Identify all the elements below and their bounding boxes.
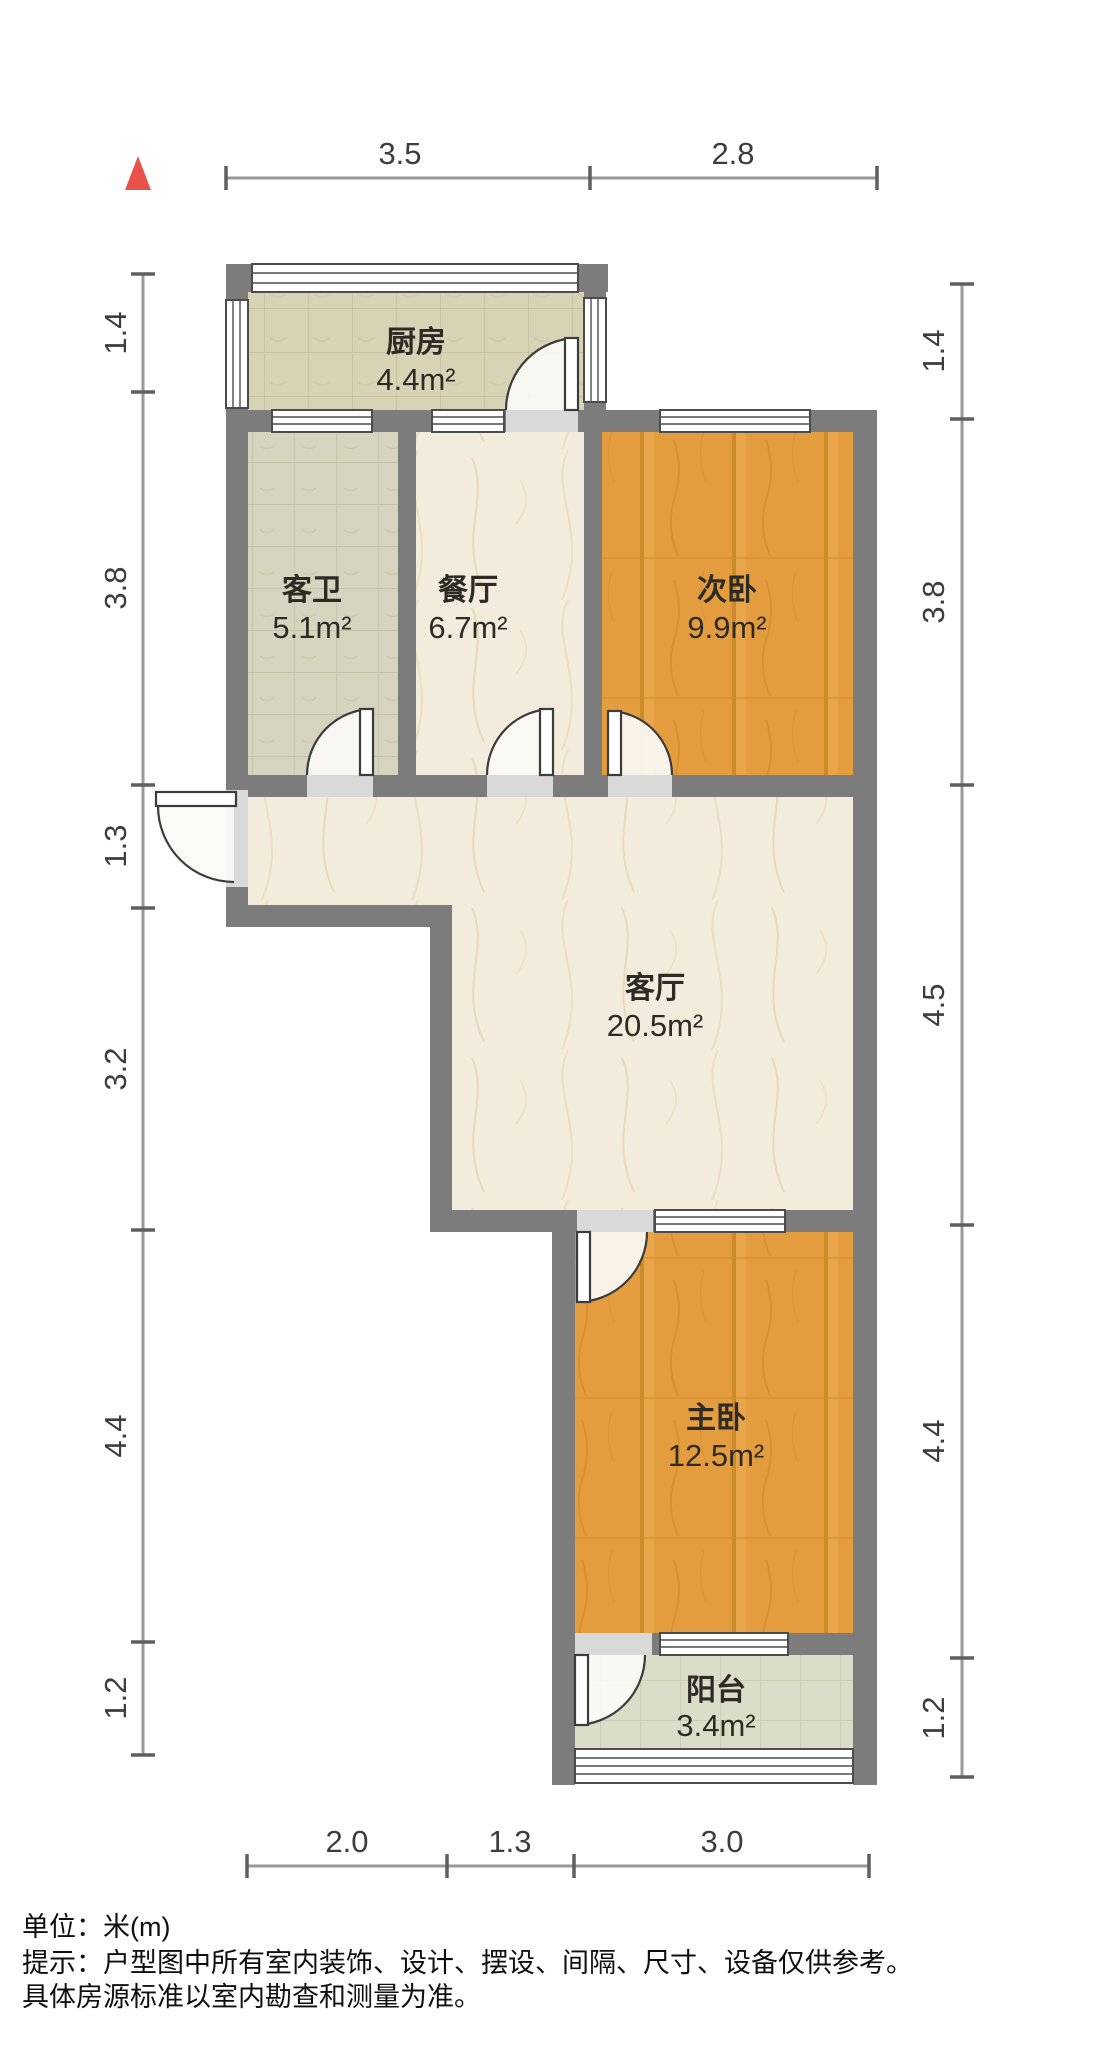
floor-plan-svg: 厨房 4.4m² 客卫 5.1m² 餐厅 6.7m² 次卧 9.9m² 客厅 2… [0,0,1106,2048]
dim-left-2: 3.8 [98,566,133,609]
dim-left-4: 3.2 [98,1047,133,1090]
room-floors [248,292,853,1749]
tip-note-line2: 具体房源标准以室内勘查和测量为准。 [22,1982,481,2012]
dim-bottom-2: 1.3 [488,1824,531,1859]
dim-top-2: 2.8 [711,136,754,171]
living-label: 客厅 [625,971,685,1005]
bath-transom-window-icon [272,410,372,432]
unit-note: 单位：米(m) [22,1912,170,1942]
dim-top-1: 3.5 [378,136,421,171]
dim-right-3: 4.5 [916,983,951,1026]
master-area: 12.5m² [668,1438,764,1473]
tip-note-line1: 提示：户型图中所有室内装饰、设计、摆设、间隔、尺寸、设备仅供参考。 [22,1948,913,1978]
kitchen-top-window-icon [252,264,578,292]
dimension-top: 3.5 2.8 [226,136,877,190]
bath-area: 5.1m² [272,610,351,645]
dimension-bottom: 2.0 1.3 3.0 [247,1824,869,1878]
living-master-window-icon [655,1210,785,1232]
entry-door-icon [156,792,236,882]
balcony-bottom-window-icon [575,1749,853,1783]
dimension-right: 1.4 3.8 4.5 4.4 1.2 [916,284,974,1777]
bedroom2-top-window-icon [660,410,810,432]
balcony-label: 阳台 [686,1673,746,1707]
living-area: 20.5m² [607,1008,703,1043]
bedroom2-label: 次卧 [697,574,757,607]
dim-left-3: 1.3 [98,824,133,867]
dim-right-1: 1.4 [916,329,951,372]
dim-bottom-3: 3.0 [700,1824,743,1859]
dining-transom-window-icon [432,410,504,432]
dining-label: 餐厅 [438,574,498,607]
living-floor [248,797,853,1210]
dim-left-1: 1.4 [98,311,133,354]
floor-plan-page: 厨房 4.4m² 客卫 5.1m² 餐厅 6.7m² 次卧 9.9m² 客厅 2… [0,0,1106,2048]
north-arrow-icon [125,156,151,190]
balcony-area: 3.4m² [676,1708,755,1743]
kitchen-right-window-icon [584,298,606,402]
dimension-left: 1.4 3.8 1.3 3.2 4.4 1.2 [98,274,155,1755]
footer-notes: 单位：米(m) 提示：户型图中所有室内装饰、设计、摆设、间隔、尺寸、设备仅供参考… [22,1912,913,2012]
dim-left-6: 1.2 [98,1676,133,1719]
kitchen-area: 4.4m² [376,362,455,397]
dim-bottom-1: 2.0 [325,1824,368,1859]
master-label: 主卧 [686,1402,746,1435]
bath-label: 客卫 [282,573,342,607]
dim-right-2: 3.8 [916,580,951,623]
bedroom2-area: 9.9m² [687,610,766,645]
dim-right-4: 4.4 [916,1419,951,1462]
kitchen-label: 厨房 [386,326,446,359]
dim-left-5: 4.4 [98,1414,133,1457]
master-balcony-window-icon [660,1633,788,1655]
kitchen-left-window-icon [226,300,248,408]
dim-right-5: 1.2 [916,1696,951,1739]
dining-area: 6.7m² [428,610,507,645]
